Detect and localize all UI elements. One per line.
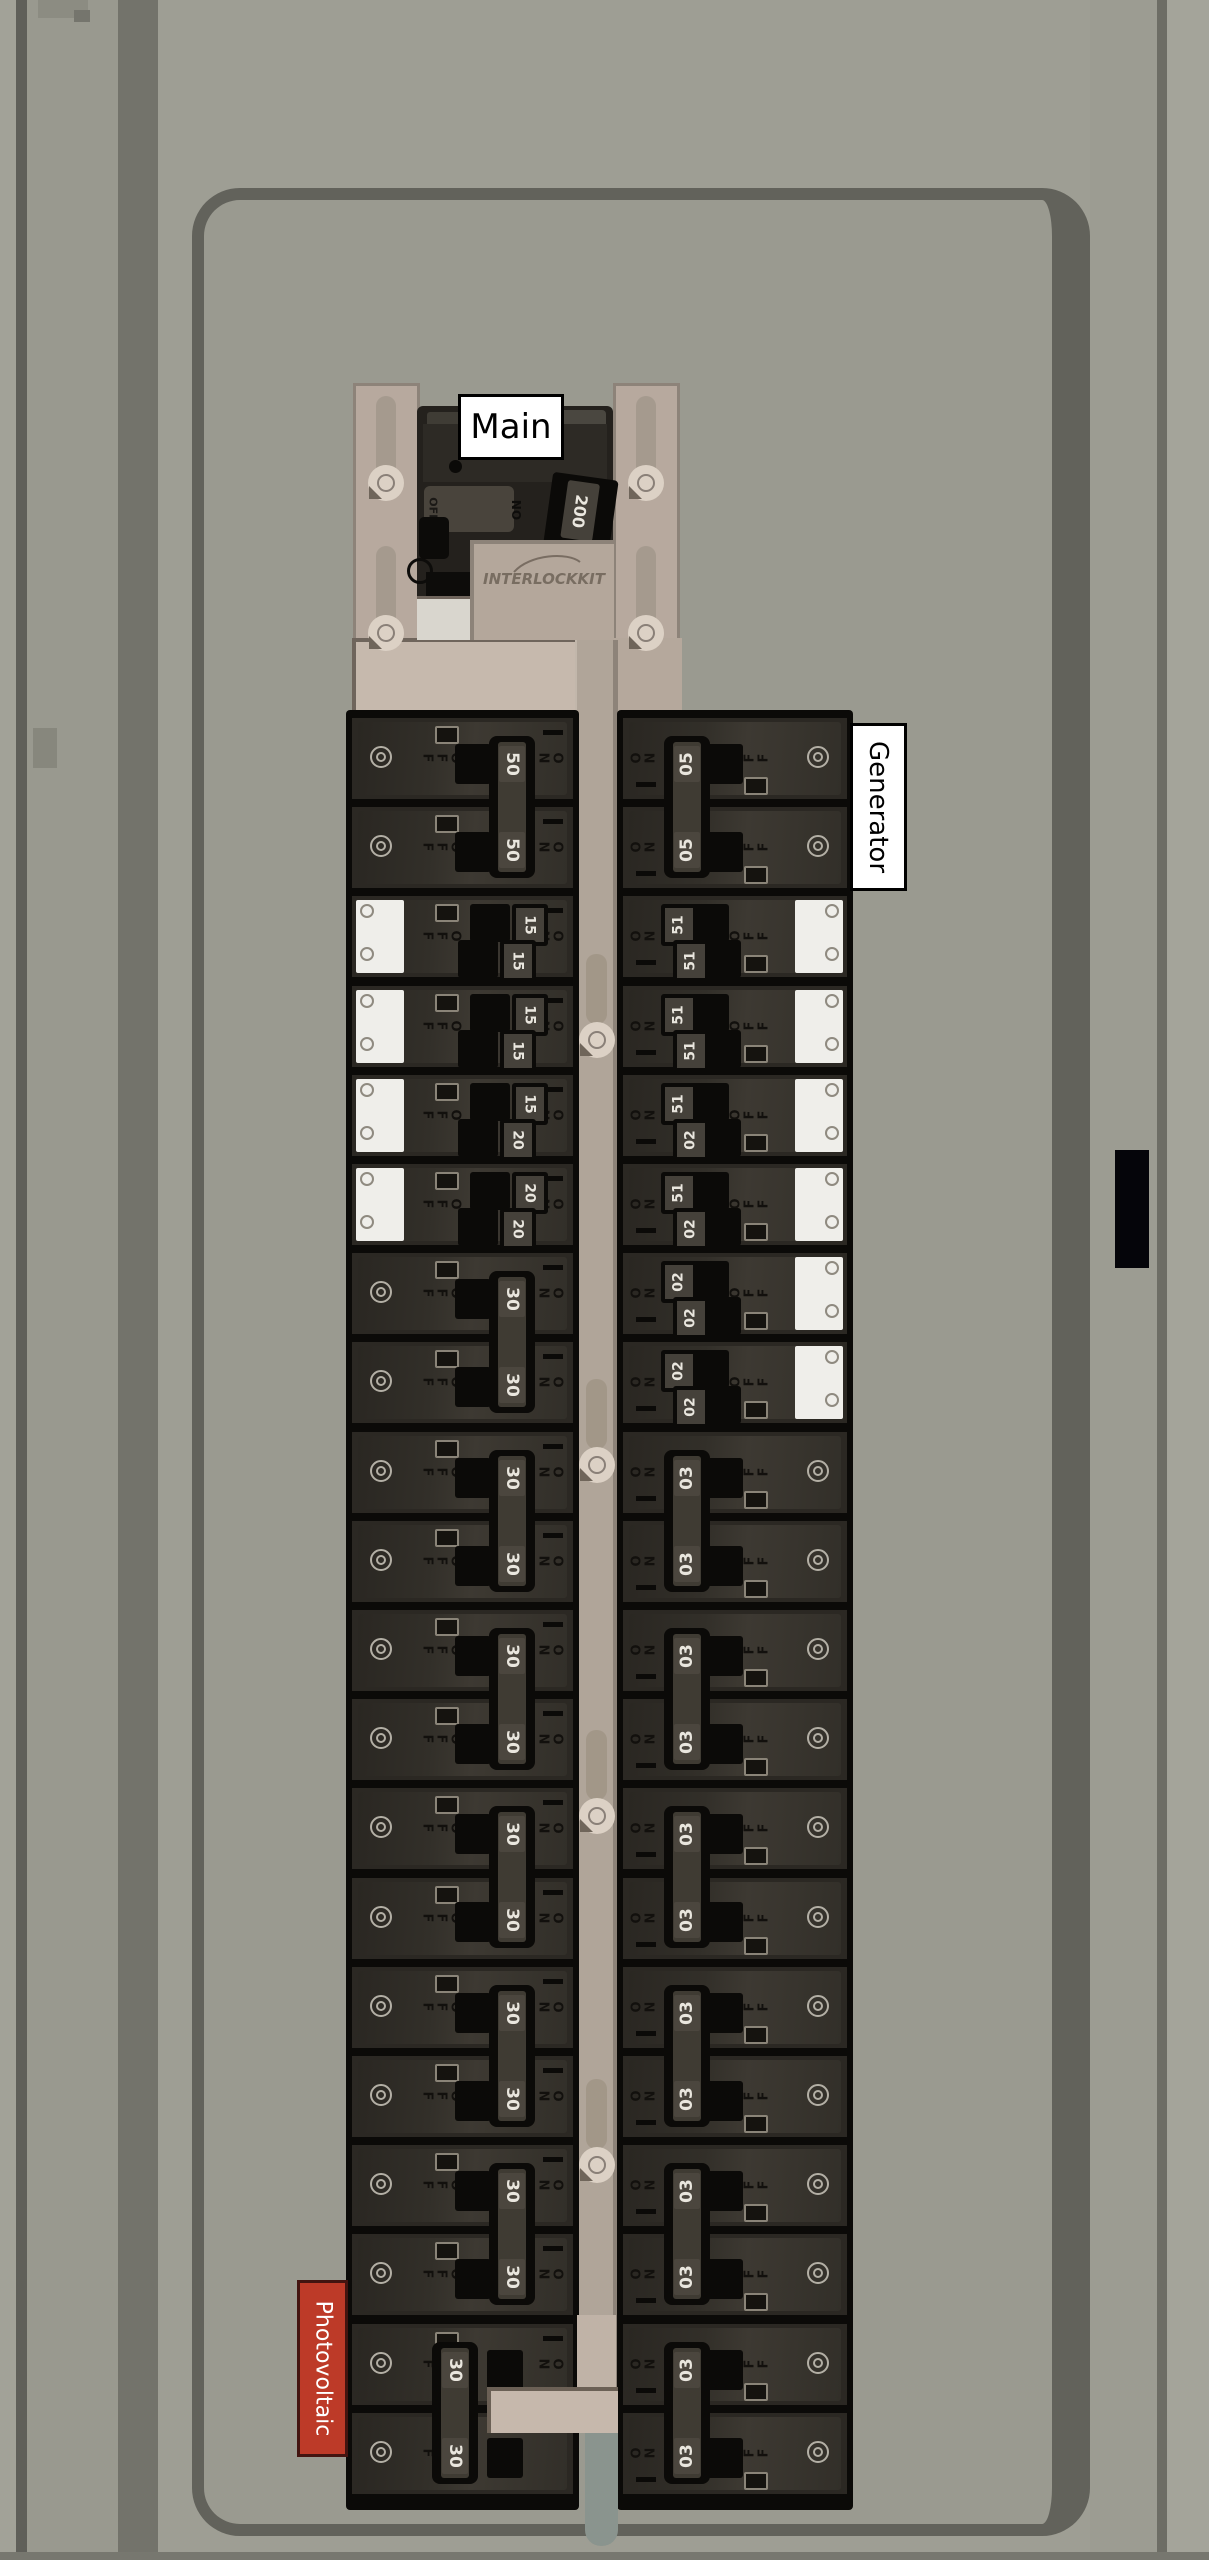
dash-mark <box>636 1674 656 1679</box>
spine-slot <box>586 2079 607 2149</box>
amp-rating: 50 <box>499 746 525 782</box>
amp-rating: 03 <box>674 1638 700 1674</box>
test-window-mark <box>435 1261 459 1279</box>
amp-rating: 50 <box>499 832 525 868</box>
off-label: FFO <box>420 929 461 943</box>
test-window-mark <box>744 2383 768 2401</box>
on-label: ON <box>631 2267 658 2281</box>
off-label: FFO <box>420 1197 461 1211</box>
test-window-mark <box>744 1937 768 1955</box>
breaker-handle[interactable]: 0303 <box>664 1985 710 2127</box>
generator-label: Generator <box>850 723 907 891</box>
breaker-handle[interactable]: 3030 <box>489 1985 535 2127</box>
dash-mark <box>636 2031 656 2036</box>
handle-wing <box>455 2081 491 2121</box>
handle-wing <box>707 2171 743 2211</box>
on-label: NO <box>536 840 563 854</box>
on-label: NO <box>536 1732 563 1746</box>
brand-glyph-icon <box>370 2173 392 2195</box>
spine-slot <box>586 954 607 1024</box>
handle-wing <box>487 2438 523 2478</box>
amp-rating: 30 <box>499 2173 525 2209</box>
dash-mark <box>543 2246 563 2251</box>
on-label: NO <box>536 1821 563 1835</box>
handle-wing <box>707 2259 743 2299</box>
cabinet-groove-right <box>1157 0 1167 2560</box>
handle-wing <box>455 2171 491 2211</box>
test-window-mark <box>435 904 459 922</box>
door-latch[interactable] <box>1115 1150 1149 1268</box>
dash-mark <box>636 1317 656 1322</box>
dash-mark <box>636 2388 656 2393</box>
handle-wing <box>707 832 743 872</box>
dash-mark <box>636 1406 656 1411</box>
dash-mark <box>543 1533 563 1538</box>
interlock-logo-swoosh <box>510 552 584 574</box>
brand-glyph-icon <box>370 1906 392 1928</box>
tandem-handle[interactable]: 15 <box>500 940 536 982</box>
handle-wing <box>707 2081 743 2121</box>
test-window-mark <box>435 1440 459 1458</box>
left-rail-knockout <box>33 728 57 768</box>
spine-screw-icon <box>579 1022 615 1058</box>
dash-mark <box>636 1585 656 1590</box>
dash-mark <box>636 1852 656 1857</box>
dash-mark <box>636 782 656 787</box>
dash-mark <box>543 2336 563 2341</box>
on-label: ON <box>631 929 658 943</box>
breaker-handle[interactable]: 3030 <box>489 2163 535 2305</box>
off-label: FFO <box>420 1019 461 1033</box>
handle-wing <box>455 2259 491 2299</box>
handle-wing <box>455 1458 491 1498</box>
brand-glyph-icon <box>807 835 829 857</box>
amp-rating: 03 <box>674 1460 700 1496</box>
breaker-handle[interactable]: 0505 <box>664 736 710 878</box>
brand-glyph-icon <box>807 2084 829 2106</box>
on-label: NO <box>536 751 563 765</box>
handle-wing <box>707 1814 743 1854</box>
sticker-ring-icon <box>360 1037 374 1051</box>
dash-mark <box>636 1050 656 1055</box>
brand-glyph-icon <box>807 1995 829 2017</box>
handle-wing <box>707 1458 743 1498</box>
tandem-handle[interactable]: 51 <box>673 1030 709 1072</box>
off-label: FFO <box>420 1108 461 1122</box>
on-label: NO <box>536 2267 563 2281</box>
brand-glyph-icon <box>807 2441 829 2463</box>
brand-glyph-icon <box>370 835 392 857</box>
on-label: ON <box>631 1286 658 1300</box>
main-label-sticker: Main <box>458 394 564 460</box>
cabinet-face-left <box>27 0 118 2560</box>
sticker-ring-icon <box>825 1037 839 1051</box>
test-window-mark <box>435 994 459 1012</box>
on-label: ON <box>631 1911 658 1925</box>
dash-mark <box>636 1942 656 1947</box>
test-window-mark <box>744 2115 768 2133</box>
dash-mark <box>543 1979 563 1984</box>
test-window-mark <box>744 2472 768 2490</box>
tandem-handle[interactable]: 02 <box>673 1119 709 1161</box>
breaker-handle[interactable]: 3030 <box>489 1806 535 1948</box>
on-label: ON <box>631 1019 658 1033</box>
on-label: ON <box>631 2357 658 2371</box>
handle-wing <box>707 1902 743 1942</box>
handle-wing <box>455 1993 491 2033</box>
on-label: NO <box>536 2000 563 2014</box>
handle-wing <box>455 1367 491 1407</box>
cabinet-groove-left <box>118 0 158 2560</box>
main-on-label: ON <box>508 492 526 528</box>
handle-wing <box>470 904 510 942</box>
test-window-mark <box>435 1975 459 1993</box>
brand-glyph-icon <box>370 1549 392 1571</box>
amp-rating: 30 <box>499 2081 525 2117</box>
cabinet-edge-right <box>1167 0 1209 2560</box>
brand-glyph-icon <box>370 2084 392 2106</box>
tandem-handle[interactable]: 02 <box>673 1386 709 1428</box>
amp-rating: 05 <box>674 832 700 868</box>
dash-mark <box>543 819 563 824</box>
amp-rating: 30 <box>499 1281 525 1317</box>
amp-rating: 03 <box>674 2081 700 2117</box>
breaker-column-right: OFFONOFFONOFFONOFFONOFFONOFFONOFFONOFFON… <box>617 710 853 2510</box>
amp-rating: 30 <box>499 1460 525 1496</box>
tandem-handle[interactable]: 51 <box>673 940 709 982</box>
tandem-handle[interactable]: 20 <box>500 1119 536 1161</box>
amp-rating: 03 <box>674 2438 700 2474</box>
test-window-mark <box>744 955 768 973</box>
breaker-handle[interactable]: 0303 <box>664 1628 710 1770</box>
breaker-handle[interactable]: 0303 <box>664 2342 710 2484</box>
bracket-screw-icon <box>368 615 404 651</box>
breaker-handle[interactable]: 3030 <box>489 1450 535 1592</box>
test-window-mark <box>744 1847 768 1865</box>
amp-rating: 03 <box>674 1724 700 1760</box>
spine-screw-icon <box>579 1798 615 1834</box>
handle-wing <box>455 1724 491 1764</box>
test-window-mark <box>435 1350 459 1368</box>
on-label: NO <box>536 2357 563 2371</box>
handle-wing <box>470 994 510 1032</box>
sticker-ring-icon <box>360 1215 374 1229</box>
brand-glyph-icon <box>370 1281 392 1303</box>
dash-mark <box>543 2157 563 2162</box>
handle-wing <box>458 1030 498 1068</box>
brand-glyph-icon <box>807 2262 829 2284</box>
test-window-mark <box>435 1707 459 1725</box>
sticker-ring-icon <box>825 1083 839 1097</box>
handle-wing <box>458 1119 498 1157</box>
dash-mark <box>636 1139 656 1144</box>
amp-rating: 03 <box>674 1902 700 1938</box>
spine-screw-icon <box>579 2147 615 2183</box>
on-label: ON <box>631 1197 658 1211</box>
amp-rating: 30 <box>499 1367 525 1403</box>
dash-mark <box>636 1228 656 1233</box>
brand-glyph-icon <box>807 1549 829 1571</box>
dash-mark <box>636 1763 656 1768</box>
test-window-mark <box>435 2064 459 2082</box>
dash-mark <box>636 2120 656 2125</box>
sticker-ring-icon <box>360 1083 374 1097</box>
handle-wing <box>458 940 498 978</box>
breaker-handle[interactable]: 0303 <box>664 1806 710 1948</box>
on-label: ON <box>631 1732 658 1746</box>
test-window-mark <box>744 2293 768 2311</box>
brand-glyph-icon <box>370 1370 392 1392</box>
on-label: ON <box>631 1821 658 1835</box>
brand-glyph-icon <box>807 1906 829 1928</box>
breaker-handle[interactable]: 3030 <box>489 1271 535 1413</box>
test-window-mark <box>435 2242 459 2260</box>
brand-glyph-icon <box>807 1460 829 1482</box>
bracket-screw-icon <box>628 615 664 651</box>
handle-wing <box>455 1546 491 1586</box>
dash-mark <box>636 1496 656 1501</box>
on-label: ON <box>631 1465 658 1479</box>
brand-glyph-icon <box>807 2352 829 2374</box>
main-breaker-dot <box>449 460 462 473</box>
amp-rating: 03 <box>674 1816 700 1852</box>
amp-rating: 30 <box>499 1816 525 1852</box>
on-label: NO <box>536 1286 563 1300</box>
dash-mark <box>636 2477 656 2482</box>
on-label: ON <box>631 1643 658 1657</box>
on-label: ON <box>631 1108 658 1122</box>
handle-wing <box>470 1172 510 1210</box>
test-window-mark <box>744 1134 768 1152</box>
brand-glyph-icon <box>807 1727 829 1749</box>
on-label: ON <box>631 2000 658 2014</box>
bracket-screw-icon <box>628 465 664 501</box>
amp-rating: 03 <box>674 2352 700 2388</box>
handle-wing <box>470 1083 510 1121</box>
amp-rating: 30 <box>499 2259 525 2295</box>
cabinet-edge-left <box>0 0 16 2560</box>
sticker-ring-icon <box>825 1215 839 1229</box>
on-label: NO <box>536 1375 563 1389</box>
breaker-handle[interactable]: 3030 <box>489 1628 535 1770</box>
main-amps-label: 200 <box>568 493 591 529</box>
test-window-mark <box>744 1223 768 1241</box>
tandem-handle[interactable]: 02 <box>673 1208 709 1250</box>
amp-rating: 03 <box>674 2173 700 2209</box>
dash-mark <box>543 2068 563 2073</box>
on-label: NO <box>536 2178 563 2192</box>
amp-rating: 30 <box>499 1995 525 2031</box>
amp-rating: 30 <box>499 1724 525 1760</box>
test-window-mark <box>435 1886 459 1904</box>
brand-glyph-icon <box>807 746 829 768</box>
amp-rating: 30 <box>499 1546 525 1582</box>
breaker-column-left: FFONOFFONOFFONOFFONOFFONOFFONOFFONOFFONO… <box>346 710 579 2510</box>
interlock-slide-arm[interactable] <box>487 2387 618 2433</box>
amp-rating: 30 <box>499 1638 525 1674</box>
sticker-ring-icon <box>360 1172 374 1186</box>
handle-wing <box>455 832 491 872</box>
handle-wing <box>707 1636 743 1676</box>
brand-glyph-icon <box>807 2173 829 2195</box>
handle-wing <box>707 744 743 784</box>
test-window-mark <box>744 777 768 795</box>
test-window-mark <box>435 1796 459 1814</box>
test-window-mark <box>744 1758 768 1776</box>
dash-mark <box>543 1444 563 1449</box>
on-label: ON <box>631 840 658 854</box>
on-label: NO <box>536 1554 563 1568</box>
amp-rating: 03 <box>674 2259 700 2295</box>
breaker-handle[interactable]: 5050 <box>489 736 535 878</box>
handle-wing <box>707 2438 743 2478</box>
handle-wing <box>458 1208 498 1246</box>
test-window-mark <box>435 1083 459 1101</box>
amp-rating: 05 <box>674 746 700 782</box>
brand-glyph-icon <box>370 1460 392 1482</box>
dash-mark <box>543 1354 563 1359</box>
handle-wing <box>707 1546 743 1586</box>
amp-rating: 30 <box>442 2352 468 2388</box>
photovoltaic-label: Photovoltaic <box>297 2280 348 2457</box>
sticker-ring-icon <box>360 994 374 1008</box>
dash-mark <box>543 730 563 735</box>
handle-wing <box>707 1993 743 2033</box>
handle-wing <box>707 2350 743 2390</box>
brand-glyph-icon <box>807 1638 829 1660</box>
dash-mark <box>636 2209 656 2214</box>
test-window-mark <box>744 1669 768 1687</box>
brand-glyph-icon <box>370 2441 392 2463</box>
brand-glyph-icon <box>370 1638 392 1660</box>
amp-rating: 03 <box>674 1546 700 1582</box>
on-label: NO <box>536 1643 563 1657</box>
test-window-mark <box>744 2204 768 2222</box>
spine-screw-icon <box>579 1447 615 1483</box>
test-window-mark <box>435 2153 459 2171</box>
cabinet-face-right <box>1090 0 1157 2560</box>
test-window-mark <box>435 815 459 833</box>
interlock-plate: INTERLOCKKIT <box>470 540 614 640</box>
dash-mark <box>543 1890 563 1895</box>
sticker-ring-icon <box>825 994 839 1008</box>
handle-wing <box>487 2350 523 2390</box>
dash-mark <box>636 2298 656 2303</box>
brand-glyph-icon <box>370 1816 392 1838</box>
handle-wing <box>455 1814 491 1854</box>
sticker-ring-icon <box>360 1126 374 1140</box>
test-window-mark <box>744 1491 768 1509</box>
test-window-mark <box>744 2026 768 2044</box>
test-window-mark <box>435 1529 459 1547</box>
on-label: ON <box>631 1375 658 1389</box>
sticker-ring-icon <box>825 1126 839 1140</box>
cabinet-bottom-edge <box>0 2552 1209 2560</box>
test-window-mark <box>744 1580 768 1598</box>
dash-mark <box>543 1622 563 1627</box>
brand-glyph-icon <box>370 1995 392 2017</box>
mount-tab-notch <box>74 10 90 22</box>
test-window-mark <box>435 1618 459 1636</box>
spine-slot <box>586 1379 607 1449</box>
brand-glyph-icon <box>370 2352 392 2374</box>
on-label: ON <box>631 2089 658 2103</box>
bracket-screw-icon <box>368 465 404 501</box>
tandem-handle[interactable]: 20 <box>500 1208 536 1250</box>
interlock-slide-tab[interactable] <box>585 2430 618 2546</box>
test-window-mark <box>435 726 459 744</box>
dash-mark <box>636 871 656 876</box>
breaker-handle[interactable]: 3030 <box>432 2342 478 2484</box>
brand-glyph-icon <box>370 2262 392 2284</box>
handle-wing <box>707 1724 743 1764</box>
test-window-mark <box>744 1401 768 1419</box>
main-label-window <box>417 596 471 640</box>
brand-glyph-icon <box>807 1816 829 1838</box>
tandem-handle[interactable]: 15 <box>500 1030 536 1072</box>
breaker-handle[interactable]: 0303 <box>664 1450 710 1592</box>
handle-wing <box>455 744 491 784</box>
handle-wing <box>455 1636 491 1676</box>
breaker-handle[interactable]: 0303 <box>664 2163 710 2305</box>
brand-glyph-icon <box>370 1727 392 1749</box>
test-window-mark <box>435 1172 459 1190</box>
handle-wing <box>455 1902 491 1942</box>
brand-glyph-icon <box>370 746 392 768</box>
on-label: NO <box>536 2089 563 2103</box>
amp-rating: 30 <box>499 1902 525 1938</box>
breaker-panel: OFF ON 200 INTERLOCKKIT Main FFONOFFONOF… <box>0 0 1209 2560</box>
on-label: ON <box>631 2446 658 2460</box>
on-label: ON <box>631 2178 658 2192</box>
amp-rating: 30 <box>442 2438 468 2474</box>
dash-mark <box>636 960 656 965</box>
dash-mark <box>543 1265 563 1270</box>
on-label: ON <box>631 751 658 765</box>
sticker-ring-icon <box>825 1172 839 1186</box>
dash-mark <box>543 1711 563 1716</box>
main-interlock-knob[interactable] <box>419 517 449 559</box>
on-label: NO <box>536 1911 563 1925</box>
test-window-mark <box>744 1312 768 1330</box>
on-label: ON <box>631 1554 658 1568</box>
on-label: NO <box>536 1465 563 1479</box>
spine-slot <box>586 1730 607 1800</box>
cabinet-shadow-left <box>16 0 27 2560</box>
dash-mark <box>543 1800 563 1805</box>
handle-wing <box>455 1279 491 1319</box>
test-window-mark <box>744 866 768 884</box>
amp-rating: 03 <box>674 1995 700 2031</box>
tandem-handle[interactable]: 02 <box>673 1297 709 1339</box>
test-window-mark <box>744 1045 768 1063</box>
